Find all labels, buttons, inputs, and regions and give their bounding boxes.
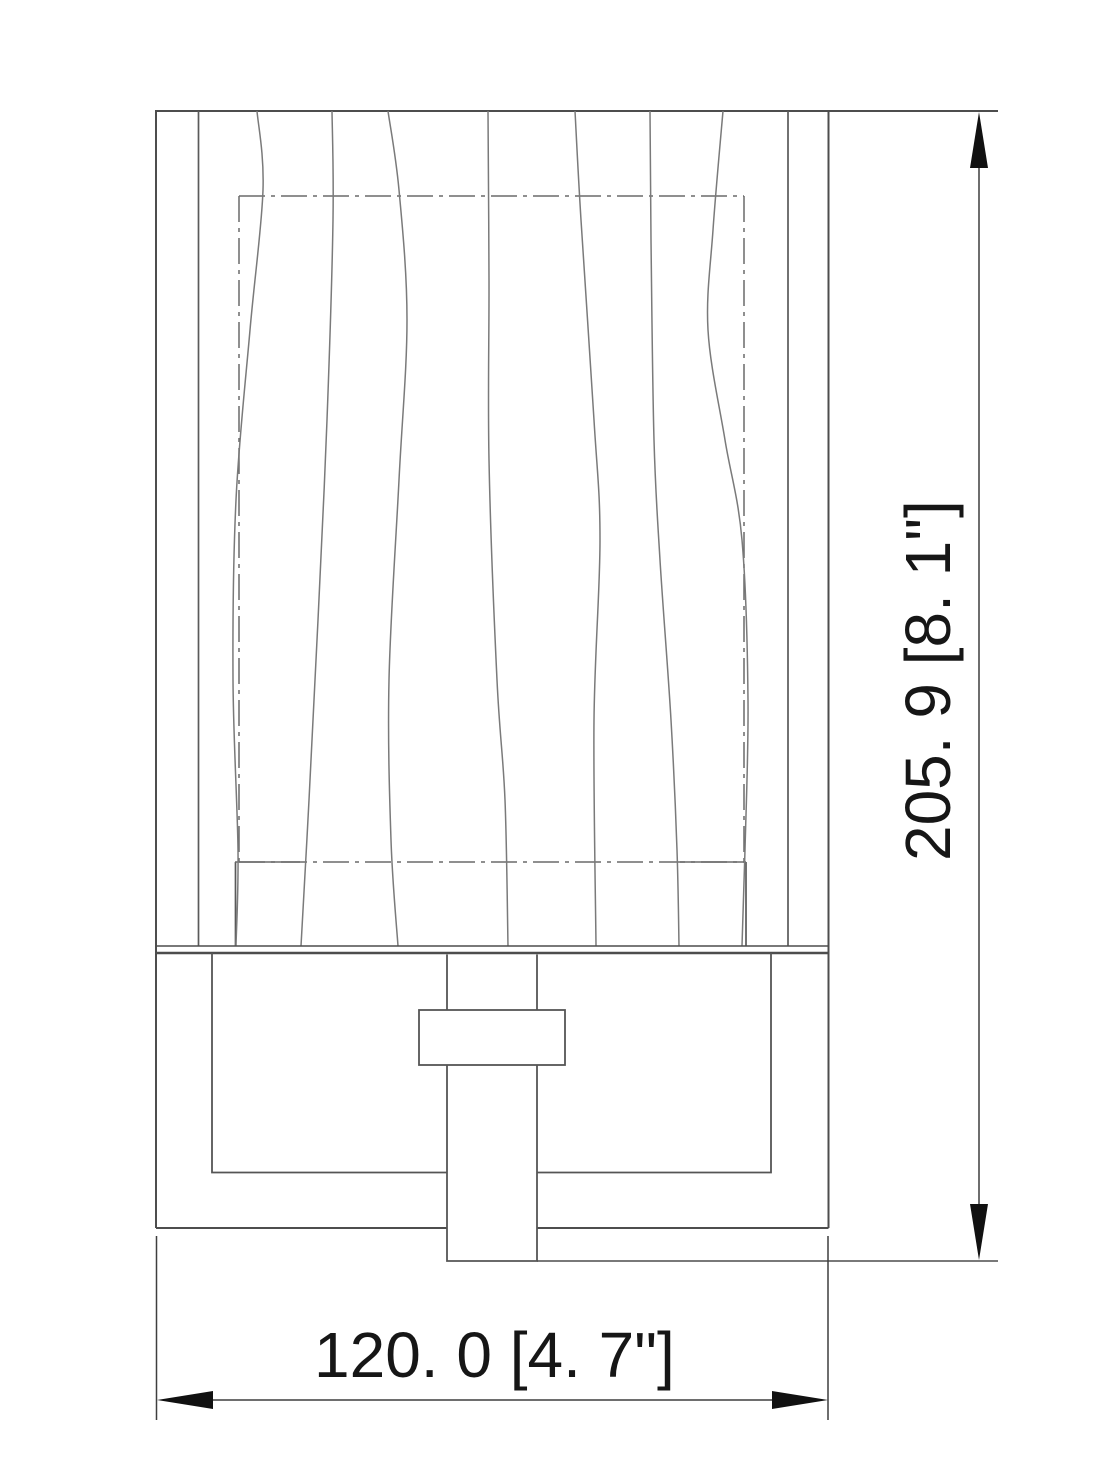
svg-text:120. 0 [4. 7"]: 120. 0 [4. 7"] bbox=[314, 1319, 675, 1391]
svg-text:205. 9 [8. 1"]: 205. 9 [8. 1"] bbox=[892, 500, 964, 861]
